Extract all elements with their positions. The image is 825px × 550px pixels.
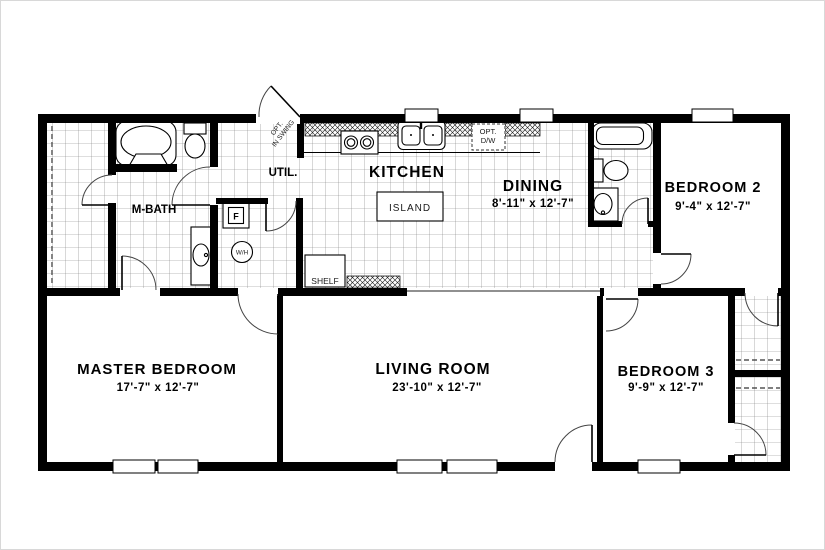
window [520,109,553,122]
water-heater-label: W/H [236,250,249,257]
vanity-sink-icon [191,227,211,285]
bedroom3-door [606,299,638,331]
bedroom2-label: BEDROOM 2 [665,180,762,196]
living-room-dims: 23'-10" x 12'-7" [392,382,482,394]
toilet-icon [593,159,628,182]
bedroom2-door [661,254,691,284]
stove-icon [341,131,378,154]
vanity-sink-icon [592,188,618,221]
util-label: UTIL. [269,167,298,179]
window [692,109,733,122]
dining-dims: 8'-11" x 12'-7" [492,198,574,210]
window [397,460,442,473]
counter-hatch [443,123,472,136]
shelf-label: SHELF [311,276,338,286]
master-bedroom-dims: 17'-7" x 12'-7" [117,382,200,394]
dining-label: DINING [503,178,563,195]
tub-icon [592,123,652,149]
furnace-label: F [233,212,239,222]
bedroom2-dims: 9'-4" x 12'-7" [675,201,751,213]
master-bedroom-label: MASTER BEDROOM [77,361,237,378]
toilet-icon [184,123,206,158]
living-room-label: LIVING ROOM [375,361,490,378]
kitchen-sink-icon [398,121,445,150]
opt-dw-label-line2: D/W [481,136,497,145]
garden-tub-icon [116,121,176,166]
opt-dw-label-line1: OPT. [480,127,497,136]
floor-plan-svg: M-BATH UTIL. KITCHEN ISLAND DINING 8'-11… [0,0,825,550]
window [405,109,438,122]
window [447,460,497,473]
front-entry-door [555,425,592,462]
m-bath-label: M-BATH [132,204,177,216]
window [158,460,198,473]
window [638,460,680,473]
island-label: ISLAND [389,203,431,214]
bedroom3-label: BEDROOM 3 [618,364,715,380]
bedroom3-dims: 9'-9" x 12'-7" [628,382,704,394]
master-bedroom-door [238,294,278,334]
counter-hatch [505,123,540,136]
kitchen-label: KITCHEN [369,164,445,181]
window [113,460,155,473]
floor-plan-page: M-BATH UTIL. KITCHEN ISLAND DINING 8'-11… [0,0,825,550]
